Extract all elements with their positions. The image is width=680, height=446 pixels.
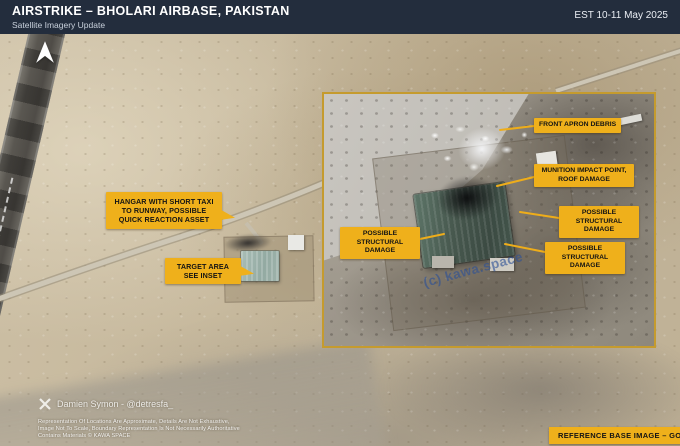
- structural-damage-right-upper-label: POSSIBLE STRUCTURAL DAMAGE: [559, 206, 639, 238]
- author-credit: Damien Symon - @detresfa_: [39, 398, 173, 410]
- page-title: AIRSTRIKE – BHOLARI AIRBASE, PAKISTAN: [12, 4, 290, 18]
- disclaimer-text: Representation Of Locations Are Approxim…: [38, 419, 240, 440]
- support-building: [288, 235, 304, 250]
- front-apron-debris-label: FRONT APRON DEBRIS: [534, 118, 621, 133]
- disclaimer-line: Contains Materials © KAWA SPACE: [38, 433, 240, 440]
- structural-damage-right-lower-label: POSSIBLE STRUCTURAL DAMAGE: [545, 242, 625, 274]
- damage-inset: (c) kawa.space FRONT APRON DEBRIS MUNITI…: [322, 92, 656, 348]
- hangar-roof: [241, 251, 279, 281]
- target-callout-text: TARGET AREA SEE INSET: [177, 262, 229, 280]
- structural-damage-left-label: POSSIBLE STRUCTURAL DAMAGE: [340, 227, 420, 259]
- disclaimer-line: Representation Of Locations Are Approxim…: [38, 419, 240, 426]
- munition-impact-label: MUNITION IMPACT POINT, ROOF DAMAGE: [534, 164, 634, 187]
- disclaimer-line: Image Not To Scale, Boundary Representat…: [38, 426, 240, 433]
- north-arrow-icon: [34, 40, 56, 64]
- hangar-callout-text: HANGAR WITH SHORT TAXI TO RUNWAY, POSSIB…: [114, 197, 213, 224]
- target-area-callout: TARGET AREA SEE INSET: [165, 258, 241, 284]
- reference-base-image-badge: REFERENCE BASE IMAGE – GOOGLE: [549, 427, 680, 444]
- author-credit-text: Damien Symon - @detresfa_: [57, 399, 173, 409]
- page-subtitle: Satellite Imagery Update: [12, 20, 105, 30]
- header-bar: AIRSTRIKE – BHOLARI AIRBASE, PAKISTAN Sa…: [0, 0, 680, 34]
- airstrike-infographic: AIRSTRIKE – BHOLARI AIRBASE, PAKISTAN Sa…: [0, 0, 680, 446]
- hangar-callout: HANGAR WITH SHORT TAXI TO RUNWAY, POSSIB…: [106, 192, 222, 229]
- date-estimate: EST 10-11 May 2025: [574, 10, 668, 21]
- x-twitter-icon: [39, 398, 51, 410]
